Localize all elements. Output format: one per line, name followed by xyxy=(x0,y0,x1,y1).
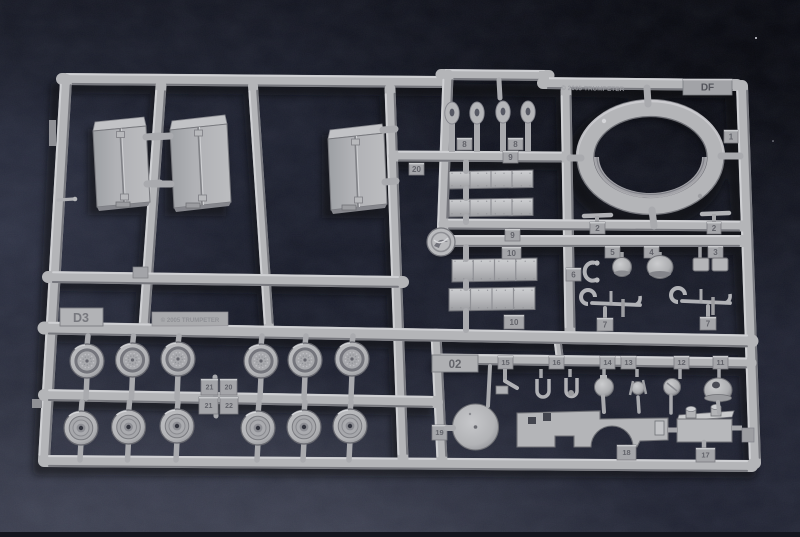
svg-text:12: 12 xyxy=(677,358,685,367)
svg-text:02: 02 xyxy=(449,359,462,371)
svg-text:11: 11 xyxy=(717,358,725,367)
svg-text:2: 2 xyxy=(712,224,717,233)
svg-text:9: 9 xyxy=(508,153,513,162)
svg-text:16: 16 xyxy=(552,358,560,367)
svg-text:21: 21 xyxy=(206,385,214,392)
svg-text:7: 7 xyxy=(706,319,711,328)
svg-text:18: 18 xyxy=(622,448,630,457)
svg-text:D3: D3 xyxy=(73,311,89,325)
svg-text:DF: DF xyxy=(701,83,714,94)
svg-text:8: 8 xyxy=(513,140,518,149)
svg-text:10: 10 xyxy=(510,318,519,327)
svg-text:20: 20 xyxy=(412,165,421,174)
svg-text:21: 21 xyxy=(205,403,213,410)
svg-text:3: 3 xyxy=(713,248,718,257)
svg-text:22: 22 xyxy=(225,403,233,410)
svg-text:4: 4 xyxy=(649,248,654,257)
svg-text:15: 15 xyxy=(501,358,509,367)
svg-text:19: 19 xyxy=(435,428,443,437)
svg-text:7: 7 xyxy=(603,320,608,329)
svg-text:9: 9 xyxy=(510,231,515,240)
svg-text:17: 17 xyxy=(701,451,709,460)
svg-text:10: 10 xyxy=(507,249,516,258)
svg-text:13: 13 xyxy=(624,358,632,367)
svg-text:14: 14 xyxy=(603,358,612,367)
svg-text:© 2005 TRUMPETER: © 2005 TRUMPETER xyxy=(561,84,625,93)
svg-text:20: 20 xyxy=(225,385,233,392)
svg-text:5: 5 xyxy=(610,248,615,257)
svg-text:8: 8 xyxy=(462,140,467,149)
svg-text:2: 2 xyxy=(595,224,600,233)
svg-text:© 2005 TRUMPETER: © 2005 TRUMPETER xyxy=(161,317,220,324)
svg-text:6: 6 xyxy=(571,270,576,279)
svg-text:1: 1 xyxy=(729,132,734,141)
